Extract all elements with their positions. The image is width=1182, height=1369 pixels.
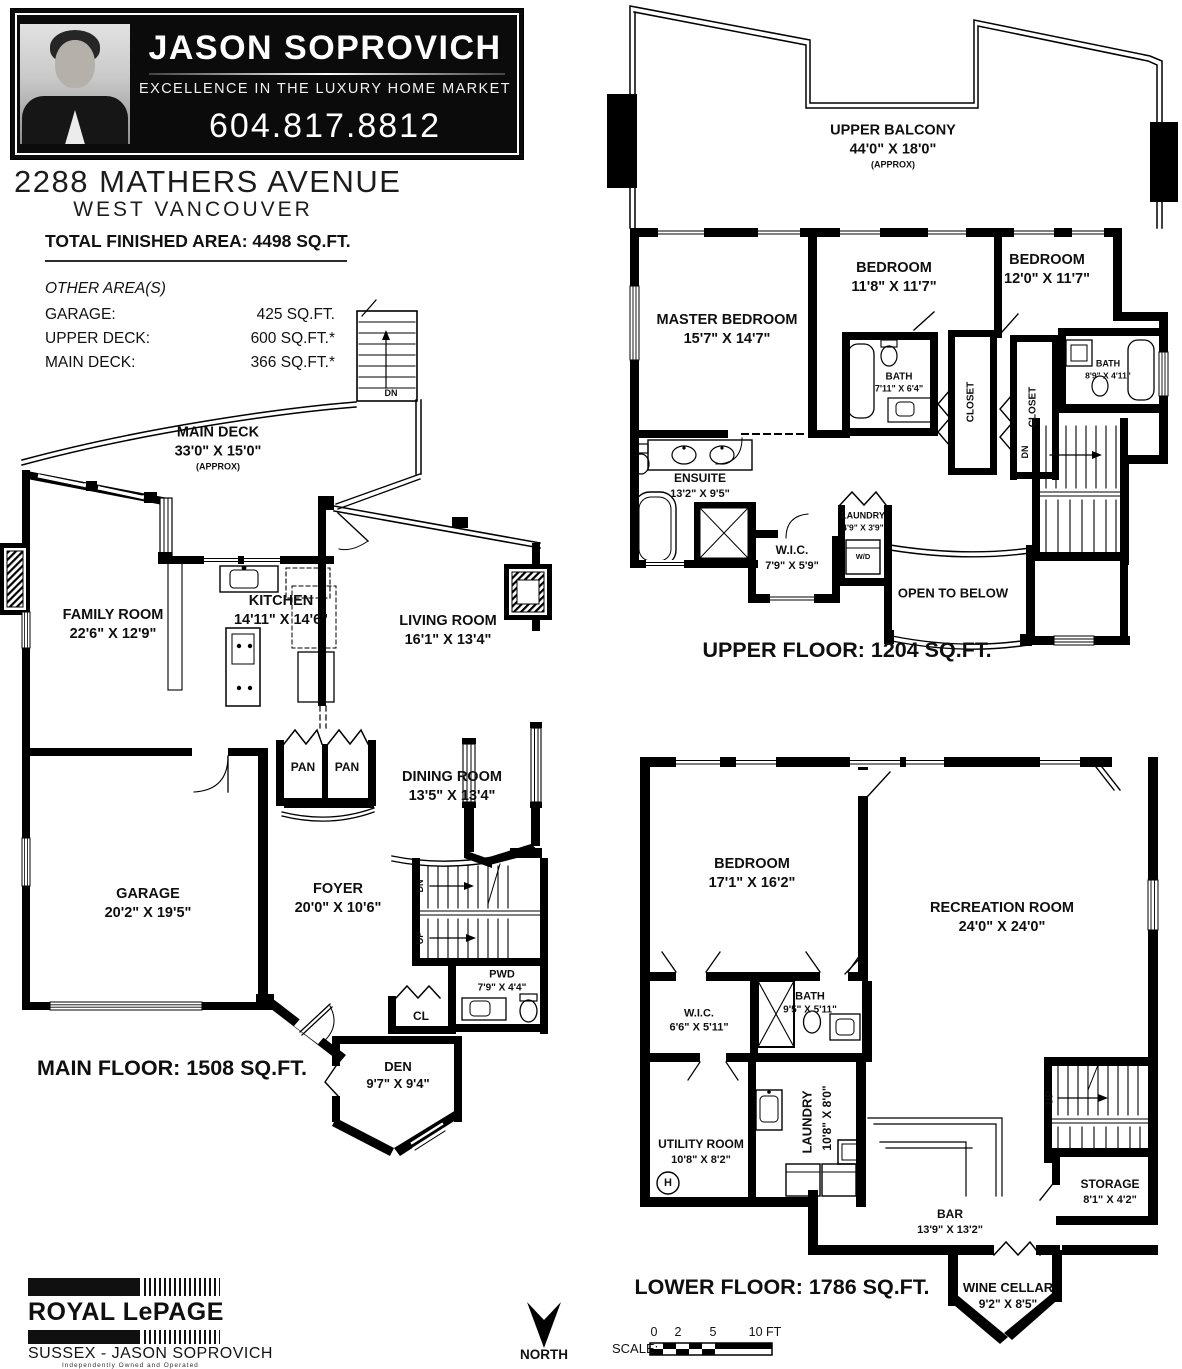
other-area-value: 425 SQ.FT. (257, 306, 335, 324)
pantry-label: PAN (335, 760, 359, 776)
storage-name: STORAGE (1080, 1177, 1139, 1193)
bath2-name: BATH (1085, 359, 1131, 371)
family-room-label: FAMILY ROOM 22'6" X 12'9" (63, 606, 164, 644)
main-stairs-dn-label: DN (415, 880, 427, 893)
utility-room-dims: 10'8" X 8'2" (658, 1153, 744, 1167)
upper-balcony-label: UPPER BALCONY 44'0" X 18'0" (APPROX) (830, 121, 956, 170)
bar-name: BAR (917, 1207, 983, 1223)
other-area-row: MAIN DECK: 366 SQ.FT.* (45, 354, 335, 372)
lower-bedroom-dims: 17'1" X 16'2" (709, 874, 796, 893)
lower-floor-plan (640, 757, 1158, 1344)
property-address: 2288 MATHERS AVENUE (14, 164, 401, 200)
other-area-label: UPPER DECK: (45, 330, 150, 347)
family-room-name: FAMILY ROOM (63, 606, 164, 625)
bath2-dims: 8'9" X 4'11" (1085, 370, 1131, 381)
kitchen-dims: 14'11" X 14'6" (234, 611, 328, 630)
bedroom1-name: BEDROOM (851, 259, 936, 278)
lower-wic-dims: 6'6" X 5'11" (669, 1021, 728, 1035)
lower-floor-title: LOWER FLOOR: 1786 SQ.FT. (634, 1274, 929, 1302)
pantry-label: PAN (291, 760, 315, 776)
bar-dims: 13'9" X 13'2" (917, 1223, 983, 1237)
lower-wic-label: W.I.C. 6'6" X 5'11" (669, 1007, 728, 1036)
upper-stairs-dn-label: DN (1020, 446, 1032, 459)
other-area-label: GARAGE: (45, 306, 116, 323)
bedroom-label: BEDROOM 12'0" X 11'7" (1004, 251, 1090, 289)
bar-label: BAR 13'9" X 13'2" (917, 1207, 983, 1237)
wic-label: W.I.C. 7'9" X 5'9" (765, 543, 819, 573)
bedroom1-dims: 11'8" X 11'7" (851, 278, 936, 297)
lower-wic-name: W.I.C. (669, 1007, 728, 1021)
laundry-label: LAUNDRY 4'9" X 3'9" (841, 511, 885, 534)
main-floor-title: MAIN FLOOR: 1508 SQ.FT. (37, 1055, 307, 1083)
ensuite-name: ENSUITE (670, 471, 730, 487)
north-arrow-icon (527, 1302, 561, 1348)
deck-stairs-dn-label: DN (385, 388, 398, 400)
foyer-label: FOYER 20'0" X 10'6" (295, 880, 382, 918)
upper-wic-name: W.I.C. (765, 543, 819, 559)
upper-balcony-name: UPPER BALCONY (830, 121, 956, 140)
north-label: NORTH (520, 1347, 568, 1362)
bath-label: BATH 7'11" X 6'4" (875, 371, 923, 396)
recreation-room-dims: 24'0" X 24'0" (930, 918, 1074, 937)
scale-bar (650, 1343, 772, 1355)
royal-lepage-office: SUSSEX - JASON SOPROVICH (28, 1345, 273, 1363)
lower-bath-label: BATH 9'5" X 5'11" (783, 989, 837, 1016)
powder-room-name: PWD (478, 967, 527, 981)
master-bedroom-name: MASTER BEDROOM (657, 311, 798, 330)
lower-bath-name: BATH (783, 989, 837, 1003)
garage-dims: 20'2" X 19'5" (105, 904, 192, 923)
wine-cellar-dims: 9'2" X 8'5" (963, 1297, 1053, 1313)
agent-phone: 604.817.8812 (133, 107, 517, 146)
kitchen-name: KITCHEN (234, 592, 328, 611)
main-deck-dims: 33'0" X 15'0" (175, 442, 262, 461)
royal-lepage-logo-stripes (144, 1278, 220, 1296)
agent-banner: JASON SOPROVICH EXCELLENCE IN THE LUXURY… (10, 8, 524, 160)
lower-stairs-up-label: UP (1044, 1091, 1057, 1105)
open-to-below-label: OPEN TO BELOW (898, 586, 1008, 603)
main-floor-plan (0, 300, 552, 1156)
powder-room-label: PWD 7'9" X 4'4" (478, 967, 527, 994)
living-room-name: LIVING ROOM (399, 612, 496, 631)
lower-laundry-name: LAUNDRY (800, 1090, 817, 1153)
living-room-label: LIVING ROOM 16'1" X 13'4" (399, 612, 496, 650)
scale-tick: 0 (651, 1325, 658, 1339)
lower-laundry-dims: 10'8" X 8'0" (820, 1085, 836, 1150)
other-area-value: 366 SQ.FT.* (251, 354, 335, 372)
wine-cellar-label: WINE CELLAR 9'2" X 8'5" (963, 1280, 1053, 1312)
master-bedroom-label: MASTER BEDROOM 15'7" X 14'7" (657, 311, 798, 349)
utility-room-name: UTILITY ROOM (658, 1137, 744, 1153)
garage-name: GARAGE (105, 885, 192, 904)
storage-label: STORAGE 8'1" X 4'2" (1080, 1177, 1139, 1207)
washer-dryer-label: W/D (856, 552, 871, 562)
banner-divider (149, 73, 505, 75)
main-deck-label: MAIN DECK 33'0" X 15'0" (APPROX) (175, 423, 262, 472)
hot-water-tank-symbol: H (664, 1176, 672, 1190)
upper-floor-title: UPPER FLOOR: 1204 SQ.FT. (702, 637, 991, 665)
powder-room-dims: 7'9" X 4'4" (478, 982, 527, 995)
garage-label: GARAGE 20'2" X 19'5" (105, 885, 192, 923)
royal-lepage-legal: Independently Owned and Operated (62, 1362, 199, 1369)
scale-label: SCALE: (612, 1341, 658, 1356)
royal-lepage-logo-stripes (144, 1330, 220, 1344)
royal-lepage-brand: ROYAL LePAGE (28, 1298, 224, 1327)
main-deck-approx: (APPROX) (175, 461, 262, 473)
other-area-row: GARAGE: 425 SQ.FT. (45, 306, 335, 324)
wine-cellar-name: WINE CELLAR (963, 1280, 1053, 1297)
storage-dims: 8'1" X 4'2" (1080, 1193, 1139, 1207)
closet-label: CL (413, 1009, 429, 1025)
recreation-room-name: RECREATION ROOM (930, 899, 1074, 918)
master-bedroom-dims: 15'7" X 14'7" (657, 330, 798, 349)
total-finished-area: TOTAL FINISHED AREA: 4498 SQ.FT. (45, 231, 347, 262)
bath1-dims: 7'11" X 6'4" (875, 384, 923, 396)
scale-tick: 2 (675, 1325, 682, 1339)
recreation-room-label: RECREATION ROOM 24'0" X 24'0" (930, 899, 1074, 937)
dining-room-label: DINING ROOM 13'5" X 13'4" (402, 768, 502, 806)
living-room-dims: 16'1" X 13'4" (399, 631, 496, 650)
other-area-label: MAIN DECK: (45, 354, 135, 371)
ensuite-label: ENSUITE 13'2" X 9'5" (670, 471, 730, 501)
main-deck-name: MAIN DECK (175, 423, 262, 442)
agent-name: JASON SOPROVICH (133, 29, 517, 68)
other-area-row: UPPER DECK: 600 SQ.FT.* (45, 330, 335, 348)
other-areas-title: OTHER AREA(S) (45, 280, 166, 298)
lower-bedroom-name: BEDROOM (709, 855, 796, 874)
royal-lepage-logo-bar (28, 1330, 140, 1344)
agent-photo-face (55, 40, 95, 88)
kitchen-label: KITCHEN 14'11" X 14'6" (234, 592, 328, 630)
lower-bedroom-label: BEDROOM 17'1" X 16'2" (709, 855, 796, 893)
property-city: WEST VANCOUVER (73, 198, 313, 222)
upper-laundry-dims: 4'9" X 3'9" (841, 522, 885, 533)
bedroom2-name: BEDROOM (1004, 251, 1090, 270)
agent-tagline: EXCELLENCE IN THE LUXURY HOME MARKET (133, 81, 517, 97)
upper-wic-dims: 7'9" X 5'9" (765, 559, 819, 573)
royal-lepage-logo-bar (28, 1278, 140, 1296)
closet-label: CLOSET (965, 382, 978, 423)
dining-room-dims: 13'5" X 13'4" (402, 787, 502, 806)
scale-tick: 5 (710, 1325, 717, 1339)
utility-room-label: UTILITY ROOM 10'8" X 8'2" (658, 1137, 744, 1167)
upper-balcony-approx: (APPROX) (830, 159, 956, 171)
dining-room-name: DINING ROOM (402, 768, 502, 787)
ensuite-dims: 13'2" X 9'5" (670, 487, 730, 501)
den-label: DEN 9'7" X 9'4" (366, 1059, 429, 1093)
upper-laundry-name: LAUNDRY (841, 511, 885, 523)
scale-tick: 10 FT (749, 1325, 782, 1339)
lower-bath-dims: 9'5" X 5'11" (783, 1004, 837, 1017)
closet-label: CLOSET (1027, 387, 1040, 428)
foyer-name: FOYER (295, 880, 382, 899)
upper-balcony-dims: 44'0" X 18'0" (830, 140, 956, 159)
bath-label: BATH 8'9" X 4'11" (1085, 359, 1131, 382)
agent-photo (20, 24, 130, 144)
den-dims: 9'7" X 9'4" (366, 1076, 429, 1093)
main-stairs-up-label: UP (415, 932, 427, 945)
foyer-dims: 20'0" X 10'6" (295, 899, 382, 918)
bedroom2-dims: 12'0" X 11'7" (1004, 270, 1090, 289)
family-room-dims: 22'6" X 12'9" (63, 625, 164, 644)
den-name: DEN (366, 1059, 429, 1076)
bedroom-label: BEDROOM 11'8" X 11'7" (851, 259, 936, 297)
other-area-value: 600 SQ.FT.* (251, 330, 335, 348)
bath1-name: BATH (875, 371, 923, 384)
